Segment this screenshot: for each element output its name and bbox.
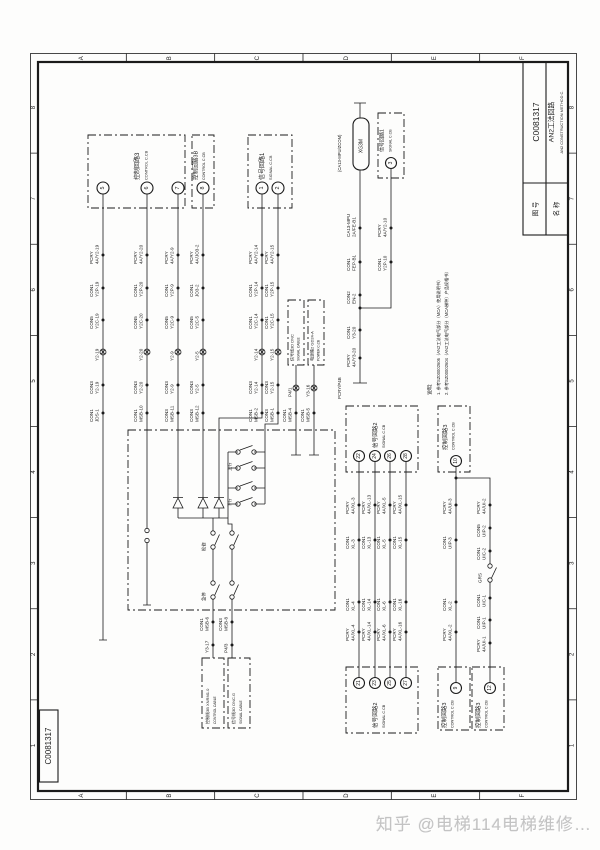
junction-dot-icon (277, 287, 280, 290)
zone-number: 4 (31, 470, 37, 474)
terminal-number: 22 (356, 453, 362, 459)
junction-dot-icon (146, 287, 149, 290)
junction-dot-icon (390, 261, 393, 264)
wire-label: PCRY (264, 251, 269, 264)
block-cable_sig3d-label-cn: 信号线3D DNC (289, 334, 295, 361)
wire-label: Y2-14 (254, 381, 259, 394)
wire-label: CON3 (133, 381, 138, 394)
wire-label: XL-13 (367, 536, 372, 549)
junction-dot-icon (277, 412, 280, 415)
zone-number: 3 (31, 561, 37, 565)
wire-label: 4A/XL-14 (367, 621, 372, 641)
terminal-number: 25 (387, 680, 393, 686)
block-sig2_bottom-label-cn: 信号回路2 (371, 703, 379, 729)
block-sig2_top-label-cn: 信号回路2 (371, 423, 379, 449)
wire-label: CON3 (164, 381, 169, 394)
contact-terminal-icon (230, 581, 234, 585)
wire-label: UIC-2 (482, 548, 487, 560)
contact-terminal-icon (211, 545, 215, 549)
wire-label: XL-2 (448, 601, 453, 611)
terminal-number: 12 (487, 685, 493, 691)
wire-label: Y2-5 (195, 351, 200, 361)
wire-label: 4A/UI-1 (482, 636, 487, 652)
terminal-number: 10 (453, 458, 459, 464)
wire-label: CON1 (442, 536, 447, 549)
wire-label: Y3-20 (352, 326, 357, 339)
zone-letter: B (167, 794, 173, 798)
junction-dot-icon (177, 412, 180, 415)
wire-label: Y3-16 (306, 384, 311, 397)
wire-label: CON1 (476, 616, 481, 629)
wire-label: CON3 (89, 381, 94, 394)
terminal-number: 3 (388, 161, 394, 164)
wire-label: Y2-19 (95, 348, 100, 361)
wire-label: CON1 (189, 284, 194, 297)
wire-label: CON1 (248, 316, 253, 329)
contact-terminal-icon (488, 578, 492, 582)
junction-dot-icon (202, 319, 205, 322)
wire-label: CON3 (189, 409, 194, 422)
junction-dot-icon (177, 319, 180, 322)
wire-label: CON3 (264, 381, 269, 394)
block-ctrl3b_top-label-en: CONTROL C.CB (202, 152, 206, 180)
junction-dot-icon (455, 504, 458, 507)
zone-letter: A (79, 794, 85, 798)
wire-label: PCRY (164, 251, 169, 264)
contact-terminal-icon (145, 528, 149, 532)
junction-dot-icon (359, 261, 362, 264)
wire-label: Y2-20 (139, 348, 144, 361)
block-ctrl3b_top-label-cn: 控制回路3B (192, 151, 200, 180)
diodes (173, 498, 224, 509)
wire-label: 4A/XL-16 (398, 621, 403, 641)
terminal-number: 1 (259, 187, 265, 190)
wire-label: 4A/XL-2 (448, 624, 453, 641)
wire-label: 4A/XL-4 (351, 624, 356, 641)
wire-label: 2A/FE-B1 (352, 217, 357, 237)
wire-label: UIC-1 (482, 595, 487, 607)
schematic-canvas: PCRY4A/Y2-19CON1Y2P-19CON5Y2C-19Y2-19CON… (0, 0, 600, 850)
block-cable_ctrl3b-label-cn: 控制线3B XNRM1.0 (204, 688, 210, 724)
junction-dot-icon (489, 550, 492, 553)
wire-label: PCRY (361, 628, 366, 641)
contact-terminal-icon (230, 531, 234, 535)
junction-dot-icon (489, 619, 492, 622)
junction-dot-icon (405, 601, 408, 604)
switch-stop-label: 急停 (201, 592, 208, 601)
wire-label: CON1 (361, 598, 366, 611)
wire-label: CON3 (189, 381, 194, 394)
diode-icon (173, 498, 183, 509)
watermark: 知乎 @电梯114电梯维修… (376, 810, 592, 835)
junction-dot-icon (489, 642, 492, 645)
wire-label: CON3 (248, 381, 253, 394)
wire-label: 4A/XL-13 (367, 494, 372, 514)
contact-terminal-icon (145, 538, 149, 542)
wire-label: PCRY (442, 501, 447, 514)
wire-label: CON1 (346, 326, 351, 339)
block-sig1_top-label-en: SIGNAL C.CB (268, 155, 273, 180)
wire-label: CON1 (476, 594, 481, 607)
zone-letter: F (520, 56, 526, 60)
junction-dot-icon (202, 412, 205, 415)
sheet-frame (31, 54, 577, 800)
title-name-label: 名 称 (552, 201, 561, 216)
wire-label: XL-16 (398, 598, 403, 611)
wire-label: Y3-17 (205, 640, 210, 653)
junction-dot-icon (405, 539, 408, 542)
terminal-number: 26 (387, 453, 393, 459)
title-no-label: 图 号 (532, 201, 540, 216)
wire-label: CON1 (392, 536, 397, 549)
wire-label: CON1 (133, 409, 138, 422)
block-cable_pwr2-label-en: POWER C.CB (317, 339, 321, 361)
wire-label: MSB-6 (205, 617, 210, 631)
zone-number: 8 (31, 105, 37, 109)
wire-label: MSB-2 (254, 408, 259, 422)
wire-label: MSB-11 (170, 405, 175, 422)
wire-label: Y2C-5 (195, 316, 200, 329)
junction-dot-icon (146, 412, 149, 415)
title-name-cn: AN2工法回路 (547, 102, 556, 143)
terminal-number: 27 (403, 680, 409, 686)
terminal-number: 21 (356, 680, 362, 686)
wire-label: 4A/Y2-10 (383, 217, 388, 237)
contact-terminal-icon (230, 545, 234, 549)
zone-number: 3 (569, 561, 575, 565)
contact-terminal-icon (230, 595, 234, 599)
wire-label: CON1 (376, 598, 381, 611)
block-ctrl3_top-label-cn: 控制回路3 (133, 152, 141, 180)
wire-label: PCRY (376, 628, 381, 641)
wire-label: PCRY (361, 501, 366, 514)
zone-letter: C (255, 793, 261, 798)
wire-label: CON1 (89, 409, 94, 422)
wire-label: CON1 (248, 409, 253, 422)
junction-dot-icon (359, 294, 362, 297)
wire-label: 4A/XL-6 (382, 624, 387, 641)
wire-label: 4A/UI-3 (448, 498, 453, 514)
zone-number: 5 (569, 379, 575, 383)
junction-dot-icon (102, 319, 105, 322)
zone-number: 6 (31, 287, 37, 291)
wire-label: CON1 (248, 284, 253, 297)
wire-label: CON1 (345, 598, 350, 611)
junction-dot-icon (390, 227, 393, 230)
wire-label: Y2-15 (270, 381, 275, 394)
wire-end-bars (99, 103, 367, 640)
wire-label: XL-14 (367, 598, 372, 611)
zone-number: 4 (569, 470, 575, 474)
zone-letter: B (167, 56, 173, 60)
wire-label: CA13-MPU (346, 214, 351, 237)
wire-label: Y2-9 (170, 351, 175, 361)
wire-label: Y2C-20 (139, 313, 144, 329)
block-cable_pwr2-label-cn: 电源箱2 GD24-A (309, 331, 315, 361)
wire-label: Y2C-9 (170, 316, 175, 329)
junction-dot-icon (359, 357, 362, 360)
junction-dot-icon (102, 384, 105, 387)
wire-label: FEP-B1 (352, 254, 357, 271)
junction-dot-icon (202, 254, 205, 257)
wire-label: 4A/Y2-15 (270, 244, 275, 264)
wire-label: CON1 (346, 258, 351, 271)
corner-drawing-code: C0081317 (44, 727, 53, 764)
junction-dot-icon (455, 601, 458, 604)
wire-label: 4A/XL-15 (398, 494, 403, 514)
wire-label: CON3 (164, 409, 169, 422)
junction-dot-icon (405, 631, 408, 634)
junction-dot-icon (231, 644, 234, 647)
wire-label: CON3 (264, 409, 269, 422)
wire-label: 4A/Y2-9 (170, 247, 175, 264)
wire-label: MSB-8 (224, 617, 229, 631)
block-ctrl3_rtop-label-en: CONTROL C.CB (452, 422, 456, 450)
wire-label: PCRY (392, 628, 397, 641)
wire-label: UIP-1 (482, 617, 487, 629)
zone-letter: D (344, 55, 350, 60)
junction-dot-icon (146, 384, 149, 387)
wire-label: CON5 (189, 316, 194, 329)
wire-label: CON1 (133, 284, 138, 297)
wire-label: PCRY (392, 501, 397, 514)
wire-label: PCRY (133, 251, 138, 264)
wire-label: XL-5 (382, 539, 387, 549)
wire-label: Y2C-14 (254, 313, 259, 329)
wire-label: CON1 (89, 284, 94, 297)
junction-dot-icon (455, 631, 458, 634)
junction-dot-icon (146, 319, 149, 322)
wire-label: UIP-3 (448, 537, 453, 549)
wire-label: Y2C-15 (270, 313, 275, 329)
block-ctrl3_top-label-en: CONTROL C.CB (144, 150, 149, 180)
contact-terminal-icon (488, 564, 492, 568)
wire-label: CON1 (199, 618, 204, 631)
wire-label: CON1 (345, 536, 350, 549)
junction-dot-icon (455, 477, 458, 480)
wire-label: UIP-2 (482, 525, 487, 537)
wire-label: JDS-1 (95, 409, 100, 422)
wire-label: PCRY (442, 628, 447, 641)
junction-dot-icon (102, 287, 105, 290)
wire-label: 4A/Y2-14 (254, 244, 259, 264)
block-cable_sig3dg-label-en: SIGNAL CABLE (239, 700, 243, 724)
wire-label: P4/3 (224, 643, 229, 653)
zone-letter: C (255, 55, 261, 60)
block-sig1_top-label-cn: 信号回路1 (258, 152, 266, 180)
wire-label: PCRY (345, 628, 350, 641)
zone-number: 8 (569, 105, 575, 109)
junction-dot-icon (231, 621, 234, 624)
wire-label: 4A/XL-5 (382, 497, 387, 514)
text-labels: PCRY4A/Y2-19CON1Y2P-19CON5Y2C-19Y2-19CON… (31, 55, 575, 797)
net-label: PCRY/P4B (337, 377, 342, 399)
terminal-number: 8 (200, 187, 206, 190)
junction-dot-icon (455, 539, 458, 542)
junction-dot-icon (146, 254, 149, 257)
wire-label: Y2-15 (270, 348, 275, 361)
wire-label: XL-15 (398, 536, 403, 549)
block-ctrl3_rbot1-label-en: CONTROL C.CB (451, 700, 455, 728)
wire-label: CON1 (376, 536, 381, 549)
wire-label: JO3-2 (195, 284, 200, 297)
terminal-number: 28 (403, 453, 409, 459)
terminal-number: 9 (453, 686, 459, 689)
wire-label: 4A/Y2-20 (139, 244, 144, 264)
zone-number: 6 (569, 287, 575, 291)
wire-label: XL-3 (351, 539, 356, 549)
scanned-schematic-page: PCRY4A/Y2-19CON1Y2P-19CON5Y2C-19Y2-19CON… (0, 0, 600, 850)
wire-label: CON1 (282, 409, 287, 422)
terminal-number: 2 (275, 187, 281, 190)
wire-label: CON5 (476, 524, 481, 537)
junction-dot-icon (177, 254, 180, 257)
wire-label: PCRY (189, 251, 194, 264)
junction-dot-icon (359, 307, 362, 310)
wire-label: CON1 (392, 598, 397, 611)
terminal-number: 6 (144, 187, 150, 190)
zone-letter: E (432, 56, 438, 60)
wire-label: 4A/JO3-2 (195, 244, 200, 264)
block-cable_sig3d-label-en: SIGNAL CABLE (297, 337, 301, 361)
block-sig1_right-label-en: SIGNAL C.CB (389, 129, 393, 152)
wire-label: CON2 (346, 291, 351, 304)
relay-grs-label: GRS (478, 573, 483, 583)
block-sig2_bottom-label-en: SIGNAL C.CB (382, 704, 386, 728)
terminal-number: 5 (100, 187, 106, 190)
zone-number: 7 (569, 196, 575, 200)
contact-terminal-icon (211, 595, 215, 599)
wire-label: Y2-5 (195, 384, 200, 394)
junction-dot-icon (277, 384, 280, 387)
wire-label: CON5 (133, 316, 138, 329)
wire-label: PCRY (476, 501, 481, 514)
notes-line: 2. 参考SZ00002604（AN2工法电气部分（MCA梯种）产品规格书） (443, 269, 450, 395)
junction-dot-icon (102, 412, 105, 415)
junction-dot-icon (405, 504, 408, 507)
block-sig1_right-label-cn: 信号回路1 (379, 129, 386, 152)
wire-label: MSB-10 (139, 405, 144, 422)
contact-terminal-icon (211, 531, 215, 535)
junction-dot-icon (295, 412, 298, 415)
connector-xg3m-label: XG3M (359, 139, 365, 153)
wire-label: PCRY (248, 251, 253, 264)
notes-heading: 说明: (427, 384, 434, 395)
block-cable_sig3dg-label-cn: 信号线3D DNC.G (230, 693, 236, 724)
junction-dot-icon (359, 329, 362, 332)
terminal-number: 23 (372, 680, 378, 686)
zone-letter: E (432, 794, 438, 798)
wire-label: XL-6 (382, 601, 387, 611)
wire-label: Y2P-15 (270, 281, 275, 297)
junction-dot-icon (489, 504, 492, 507)
zone-number: 7 (31, 196, 37, 200)
block-sig2_top-label-en: SIGNAL C.CB (382, 424, 386, 448)
junction-dot-icon (177, 384, 180, 387)
wire-label: 4A/Y3-20 (352, 347, 357, 367)
junction-dot-icon (277, 254, 280, 257)
wire-label: Y2-19 (95, 381, 100, 394)
zone-number: 1 (31, 743, 37, 747)
wire-label: CON1 (442, 598, 447, 611)
title-drawing-number: C0081317 (531, 102, 541, 142)
wire-label: PCRY (89, 251, 94, 264)
wire-label: MSB-5 (306, 408, 311, 422)
junction-dot-icon (177, 287, 180, 290)
wire-label: Y2P-14 (254, 281, 259, 297)
wire-label: PCRY (345, 501, 350, 514)
diode-icon (198, 498, 208, 509)
wire-label: EN-2 (352, 293, 357, 304)
wire-label: Y2C-19 (95, 313, 100, 329)
wire-label: CON5 (164, 316, 169, 329)
wire-label: 4A/UI-2 (482, 498, 487, 514)
notes-line: 1. 参考SZ00002606（AN2工法电气部分（MCA）使用说明书） (435, 278, 442, 395)
zone-letter: F (520, 793, 526, 797)
block-cable_ctrl3b-label-en: CONTROL CABLE (213, 695, 217, 724)
junction-dot-icon (277, 319, 280, 322)
wire-label: PCRY (376, 501, 381, 514)
diode-icon (214, 498, 224, 509)
switch-up-label: 上行 (226, 463, 233, 471)
net-label: (CA13-MPU/ZCOM) (337, 134, 342, 172)
wire-label: 4A/Y2-19 (95, 244, 100, 264)
wire-label: MSB-1 (270, 408, 275, 422)
title-name-en: AN2 CONSTRUCTION METHOD C. (559, 91, 564, 154)
switch-down-label: 下行 (226, 499, 233, 507)
wire-label: Y2P-20 (139, 281, 144, 297)
wire-label: 4A/XL-3 (351, 497, 356, 514)
wire-label: CON1 (264, 284, 269, 297)
zone-number: 1 (569, 743, 575, 747)
terminal-number: 24 (372, 453, 378, 459)
wire-label: Y2P-19 (95, 281, 100, 297)
block-ctrl3_rbot1-label-cn: 控制回路3 (440, 703, 448, 729)
wire-label: Y2-9 (170, 384, 175, 394)
switch-inspection-label: 检修 (201, 542, 208, 551)
wire-label: PCRY (377, 224, 382, 237)
zone-number: 2 (31, 652, 37, 656)
junction-dot-icon (489, 527, 492, 530)
block-ctrl3_rbot2-label-en: CONTROL C.CB (485, 700, 489, 728)
wire-label: CON1 (476, 547, 481, 560)
wire-label: MSB-4 (288, 408, 293, 422)
wire-label: CON1 (361, 536, 366, 549)
wire-label: MSB-12 (195, 405, 200, 422)
zone-number: 5 (31, 379, 37, 383)
wire-label: Y2P-10 (383, 255, 388, 271)
wire-label: CON1 (300, 409, 305, 422)
junction-dot-icon (212, 621, 215, 624)
wire-label: PCRY (476, 639, 481, 652)
junction-dot-icon (313, 412, 316, 415)
wire-label: Y2-14 (254, 348, 259, 361)
wire-label: CON1 (264, 316, 269, 329)
contact-terminal-icon (211, 581, 215, 585)
wire-label: PCRY (346, 354, 351, 367)
block-ctrl3_rbot2-label-cn: 控制回路3 (474, 703, 482, 729)
wire-label: Y2P-9 (170, 284, 175, 297)
wire-label: P4/1 (288, 387, 293, 397)
zone-number: 2 (569, 652, 575, 656)
zone-letter: D (344, 793, 350, 798)
junction-dot-icon (202, 384, 205, 387)
junction-dot-icon (202, 287, 205, 290)
wire-label: XL-4 (351, 601, 356, 611)
wire-label: Y2-20 (139, 381, 144, 394)
wire-label: CON5 (89, 316, 94, 329)
block-ctrl3_rtop-label-cn: 控制回路3 (441, 425, 449, 451)
